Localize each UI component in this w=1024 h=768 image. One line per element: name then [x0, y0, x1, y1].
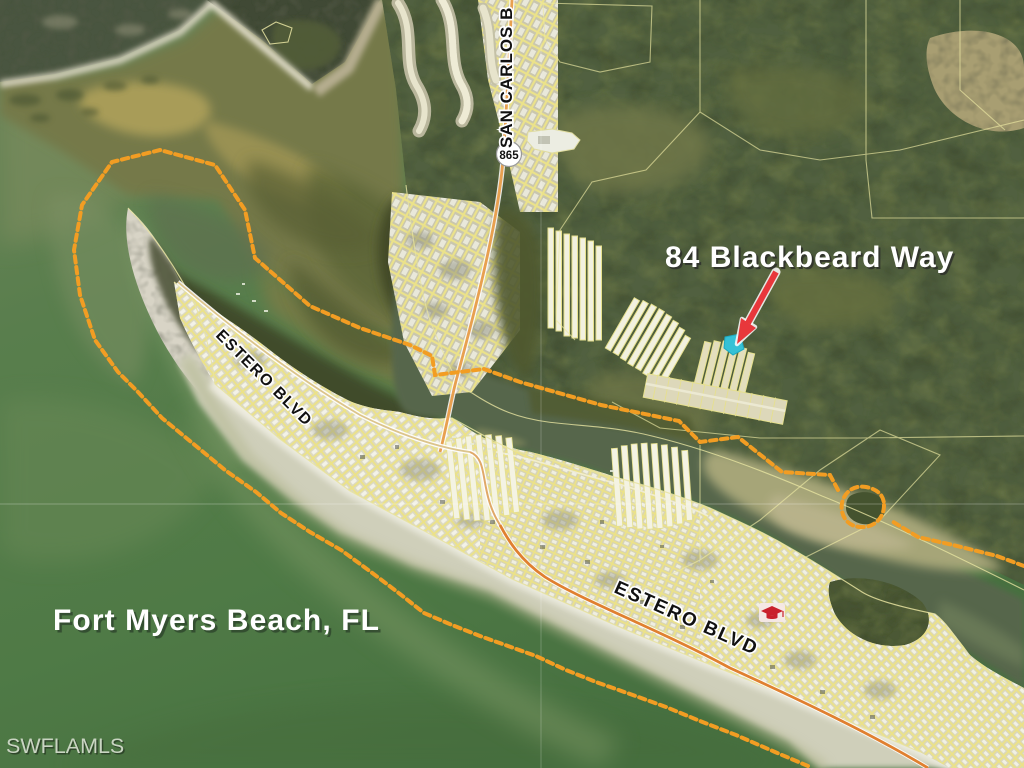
svg-text:SAN CARLOS B: SAN CARLOS B	[497, 7, 516, 148]
svg-text:865: 865	[499, 150, 519, 162]
svg-text:SWFLAMLS: SWFLAMLS	[6, 734, 124, 758]
svg-text:84 Blackbeard Way: 84 Blackbeard Way	[665, 241, 954, 274]
svg-text:Fort Myers Beach, FL: Fort Myers Beach, FL	[53, 604, 380, 637]
